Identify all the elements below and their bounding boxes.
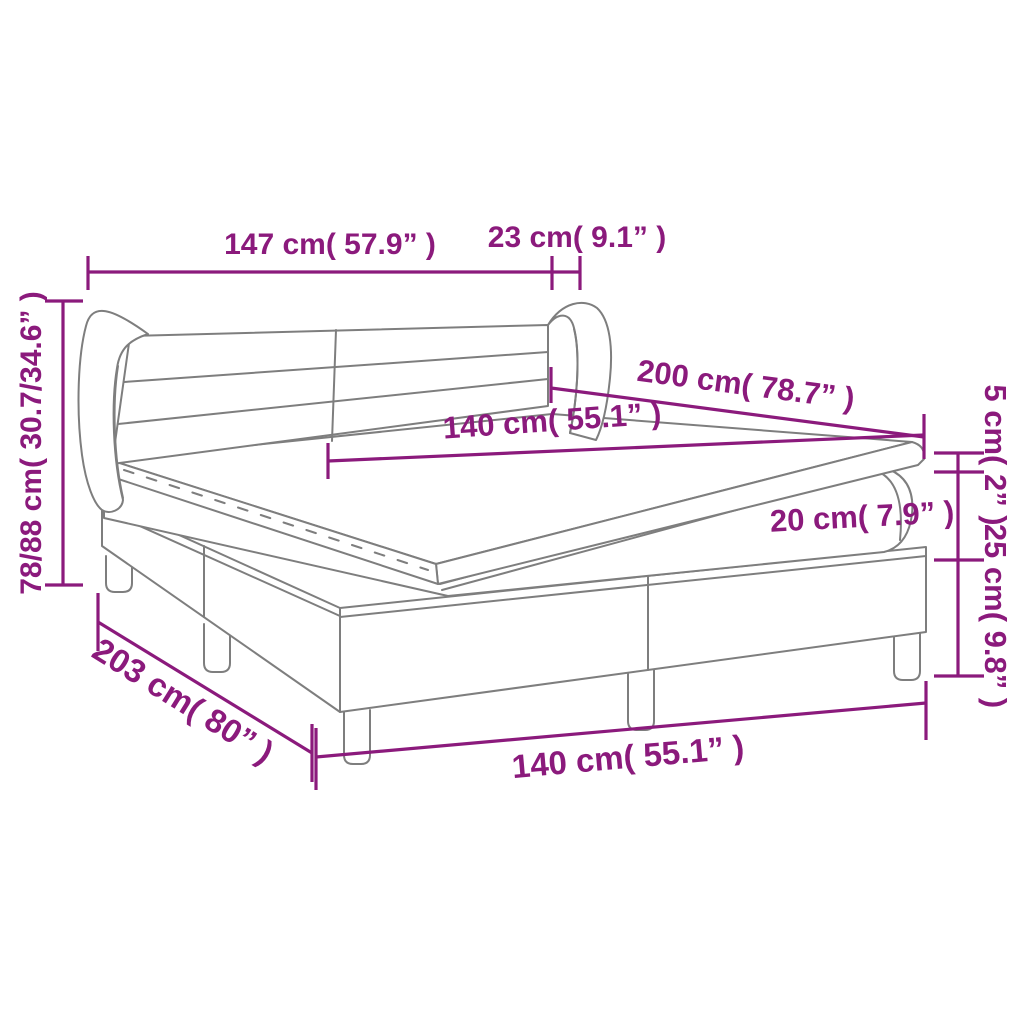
base-height-label: 25 cm( 9.8” ): [978, 524, 1013, 708]
bed-dimension-diagram: 147 cm( 57.9” ) 23 cm( 9.1” ) 78/88 cm( …: [0, 0, 1024, 1024]
bed-length-label: 203 cm( 80” ): [86, 630, 280, 770]
topper-thickness-label: 5 cm( 2” ): [978, 384, 1013, 525]
bed-leg: [894, 632, 920, 680]
bed-leg: [628, 668, 654, 730]
mattress-length-label: 200 cm( 78.7” ): [635, 353, 857, 416]
headboard-width-label: 147 cm( 57.9” ): [224, 228, 436, 261]
total-height-label: 78/88 cm( 30.7/34.6” ): [15, 291, 48, 595]
wing-depth-label: 23 cm( 9.1” ): [488, 221, 666, 254]
bed-dimension-diagram-page: 147 cm( 57.9” ) 23 cm( 9.1” ) 78/88 cm( …: [0, 0, 1024, 1024]
bed-leg: [344, 710, 370, 764]
